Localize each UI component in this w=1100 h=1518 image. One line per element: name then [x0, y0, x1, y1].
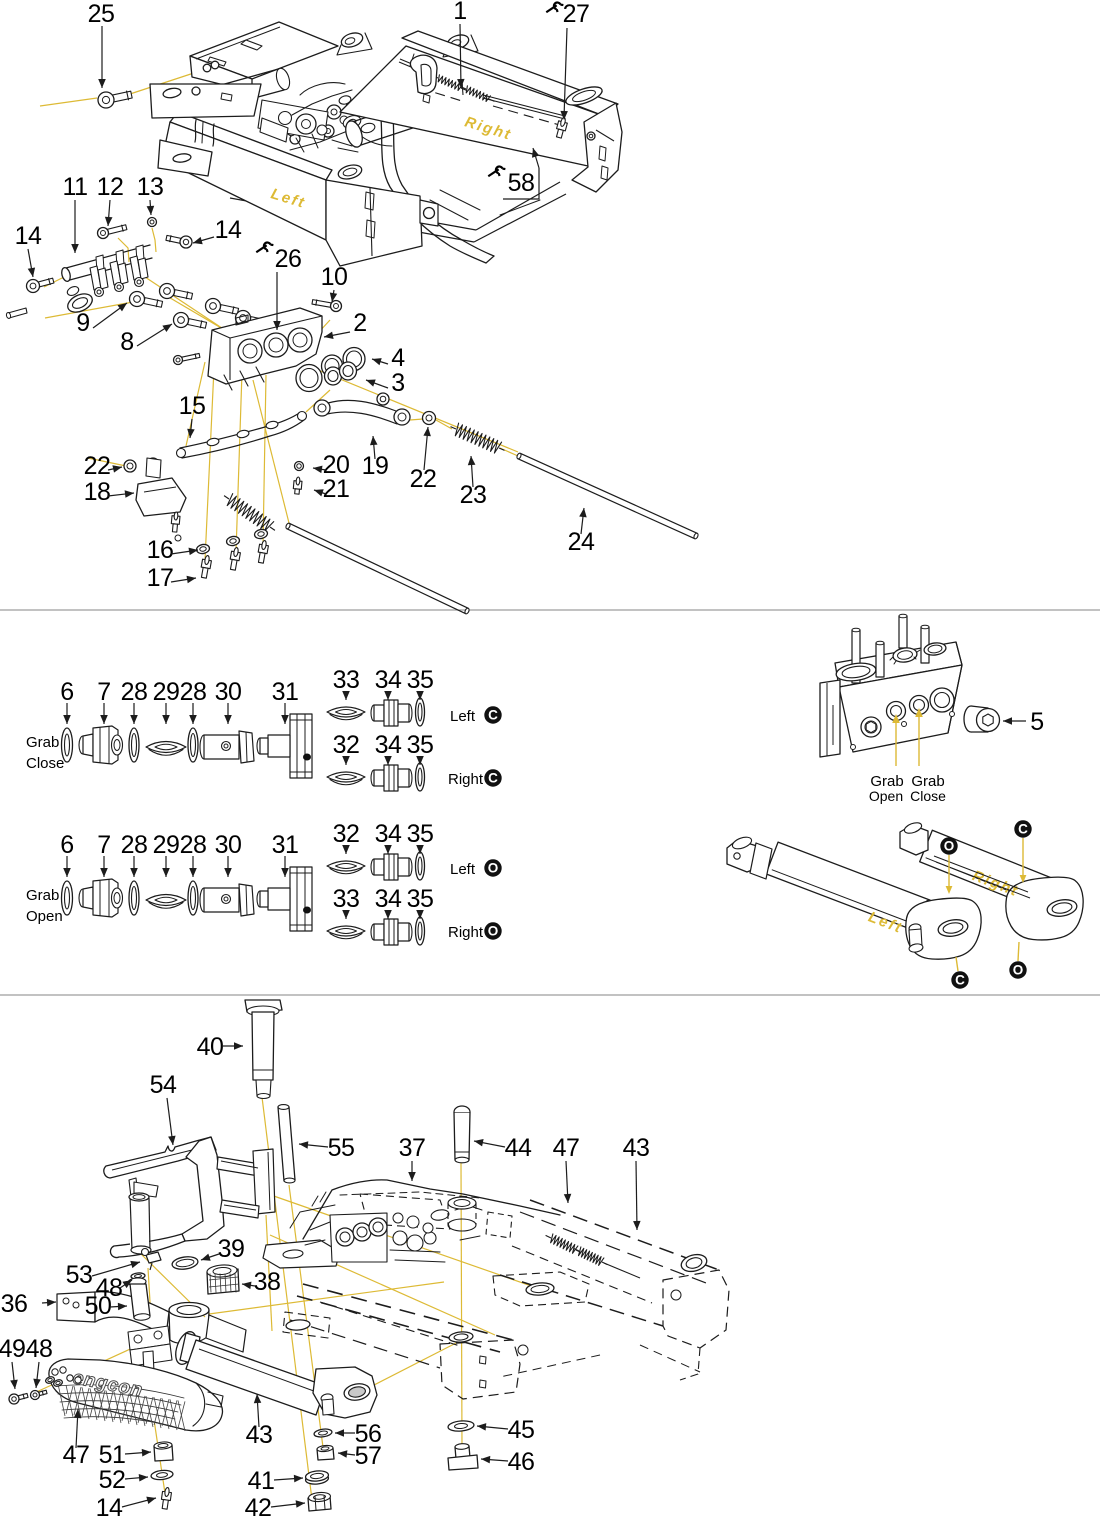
svg-text:25: 25 [88, 0, 115, 28]
svg-text:Close: Close [26, 755, 64, 772]
svg-text:Open: Open [26, 908, 63, 925]
svg-text:8: 8 [120, 328, 133, 356]
svg-text:33: 33 [333, 885, 360, 913]
svg-text:28: 28 [121, 831, 148, 859]
svg-text:Right: Right [448, 924, 484, 941]
svg-text:40: 40 [197, 1033, 224, 1061]
svg-text:55: 55 [328, 1134, 355, 1162]
svg-text:Grab: Grab [26, 734, 59, 751]
svg-text:26: 26 [275, 245, 302, 273]
svg-text:49: 49 [0, 1335, 25, 1363]
svg-text:33: 33 [333, 666, 360, 694]
svg-text:39: 39 [218, 1235, 245, 1263]
svg-text:C: C [955, 973, 965, 988]
svg-text:54: 54 [150, 1071, 177, 1099]
svg-text:52: 52 [99, 1466, 126, 1494]
svg-text:11: 11 [63, 173, 88, 201]
svg-text:28: 28 [180, 831, 207, 859]
svg-text:O: O [488, 924, 499, 939]
svg-text:32: 32 [333, 820, 360, 848]
svg-text:Close: Close [910, 788, 946, 804]
svg-text:43: 43 [623, 1134, 650, 1162]
svg-text:30: 30 [215, 831, 242, 859]
svg-text:21: 21 [323, 475, 350, 503]
svg-text:13: 13 [137, 173, 164, 201]
svg-text:Right: Right [448, 771, 484, 788]
svg-text:31: 31 [272, 678, 299, 706]
svg-text:17: 17 [147, 564, 174, 592]
svg-text:42: 42 [245, 1494, 272, 1518]
svg-text:Open: Open [869, 788, 903, 804]
svg-text:12: 12 [97, 173, 124, 201]
svg-text:53: 53 [66, 1261, 93, 1289]
svg-text:O: O [944, 839, 955, 854]
svg-text:7: 7 [97, 831, 110, 859]
svg-text:O: O [1013, 963, 1024, 978]
svg-text:29: 29 [153, 678, 180, 706]
svg-text:Grab: Grab [26, 887, 59, 904]
svg-text:47: 47 [553, 1134, 580, 1162]
svg-text:16: 16 [147, 536, 174, 564]
svg-text:41: 41 [248, 1467, 275, 1495]
svg-text:35: 35 [407, 885, 434, 913]
svg-text:35: 35 [407, 666, 434, 694]
svg-text:57: 57 [355, 1442, 382, 1470]
svg-text:14: 14 [96, 1494, 123, 1518]
svg-text:2: 2 [353, 309, 366, 337]
svg-text:18: 18 [84, 478, 111, 506]
svg-text:32: 32 [333, 731, 360, 759]
svg-text:3: 3 [391, 369, 404, 397]
svg-text:34: 34 [375, 885, 402, 913]
svg-text:37: 37 [399, 1134, 426, 1162]
svg-text:38: 38 [254, 1268, 281, 1296]
svg-text:14: 14 [215, 216, 242, 244]
svg-text:51: 51 [99, 1441, 126, 1469]
svg-text:6: 6 [60, 678, 73, 706]
svg-text:35: 35 [407, 820, 434, 848]
svg-text:44: 44 [505, 1134, 532, 1162]
svg-text:29: 29 [153, 831, 180, 859]
svg-text:27: 27 [563, 0, 590, 28]
svg-text:1: 1 [453, 0, 466, 25]
svg-text:35: 35 [407, 731, 434, 759]
svg-text:4: 4 [391, 344, 405, 372]
svg-text:5: 5 [1030, 708, 1043, 736]
svg-text:28: 28 [180, 678, 207, 706]
svg-text:9: 9 [76, 309, 89, 337]
svg-text:28: 28 [121, 678, 148, 706]
svg-text:14: 14 [15, 222, 42, 250]
svg-text:6: 6 [60, 831, 73, 859]
svg-text:C: C [488, 771, 498, 786]
svg-text:30: 30 [215, 678, 242, 706]
svg-text:46: 46 [508, 1448, 535, 1476]
svg-text:58: 58 [508, 169, 535, 197]
svg-text:10: 10 [321, 263, 348, 291]
svg-text:31: 31 [272, 831, 299, 859]
svg-text:22: 22 [410, 465, 437, 493]
svg-text:34: 34 [375, 731, 402, 759]
svg-text:Left: Left [450, 861, 476, 878]
svg-text:C: C [1018, 822, 1028, 837]
svg-text:Left: Left [450, 708, 476, 725]
svg-text:7: 7 [97, 678, 110, 706]
svg-text:O: O [488, 861, 499, 876]
svg-text:C: C [488, 708, 498, 723]
svg-text:15: 15 [179, 392, 206, 420]
svg-text:34: 34 [375, 666, 402, 694]
svg-text:22: 22 [84, 452, 111, 480]
svg-text:45: 45 [508, 1416, 535, 1444]
svg-text:34: 34 [375, 820, 402, 848]
svg-text:48: 48 [26, 1335, 53, 1363]
svg-text:50: 50 [85, 1292, 112, 1320]
svg-text:36: 36 [1, 1290, 28, 1318]
